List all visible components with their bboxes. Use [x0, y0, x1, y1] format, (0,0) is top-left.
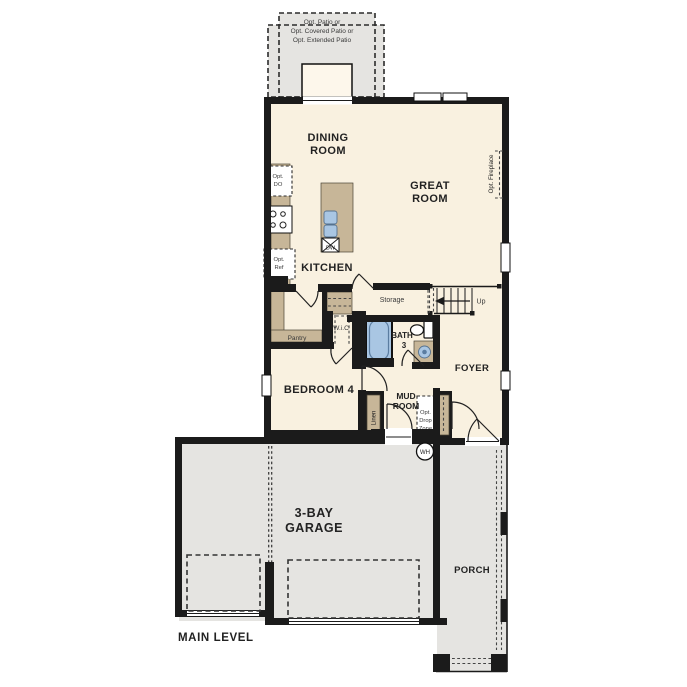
burner-icon [280, 222, 286, 228]
toilet-tank [424, 321, 433, 338]
great-room-label-1: GREAT [410, 180, 450, 192]
dining-room-label-1: DINING [308, 132, 349, 144]
porch-post [433, 654, 450, 672]
storage-label: Storage [380, 297, 405, 304]
porch-post [501, 512, 508, 535]
opt-do-label-2: DO [274, 182, 283, 188]
patio-option-label-1: Opt. Patio or [304, 19, 341, 26]
dining-room-label-2: ROOM [310, 145, 346, 157]
opt-ref-label-2: Ref [274, 265, 283, 271]
floorplan-svg: Opt. Patio or Opt. Covered Patio or Opt.… [0, 0, 687, 687]
burner-icon [271, 223, 276, 228]
window [501, 243, 510, 272]
kitchen-label: KITCHEN [301, 262, 353, 274]
mud-room-label-1: MUD [396, 391, 415, 401]
standard-patio-slab [302, 64, 352, 97]
dishwasher-label: DW [326, 246, 336, 252]
bath3-label-2: 3 [402, 341, 407, 350]
garage-bay-wall-stub [265, 562, 274, 625]
sink-basin [324, 225, 337, 237]
drop-zone-label-1: Opt. [420, 410, 431, 416]
drop-zone-label-2: Drop [419, 418, 432, 424]
window [443, 93, 467, 101]
water-heater-label: WH [420, 450, 430, 456]
stairs-up-label: Up [477, 299, 486, 306]
bedroom4-label: BEDROOM 4 [284, 384, 355, 396]
wic-label: W.i.C [333, 325, 349, 332]
mud-room-label-2: ROOM [393, 401, 419, 411]
patio-option-label-2: Opt. Covered Patio or [291, 28, 355, 35]
floorplan-canvas: Opt. Patio or Opt. Covered Patio or Opt.… [0, 0, 687, 687]
patio-option-label-3: Opt. Extended Patio [293, 37, 352, 44]
opt-fireplace-label: Opt. Fireplace [488, 154, 495, 193]
window [501, 371, 510, 390]
great-room-label-2: ROOM [412, 193, 448, 205]
level-title: MAIN LEVEL [178, 632, 254, 644]
porch-post [491, 654, 507, 672]
hall-cabinet [327, 292, 352, 314]
window [414, 93, 441, 101]
window [262, 375, 271, 396]
sink-basin [324, 211, 337, 224]
porch-label: PORCH [454, 565, 490, 576]
opt-cabinet [327, 292, 352, 314]
garage-label-2: GARAGE [285, 521, 343, 535]
pantry-label: Pantry [288, 335, 308, 342]
bath3-label-1: BATH [391, 331, 413, 340]
burner-icon [281, 212, 286, 217]
porch-post [501, 599, 508, 622]
foyer-label: FOYER [455, 363, 489, 374]
garage-label-1: 3-BAY [295, 506, 334, 520]
opt-ref-label-1: Opt. [274, 257, 285, 263]
linen-label: Linen [372, 411, 378, 426]
optional-patio-area: Opt. Patio or Opt. Covered Patio or Opt.… [268, 13, 384, 97]
vanity-drain [422, 350, 427, 355]
opt-do-label-1: Opt. [273, 174, 284, 180]
